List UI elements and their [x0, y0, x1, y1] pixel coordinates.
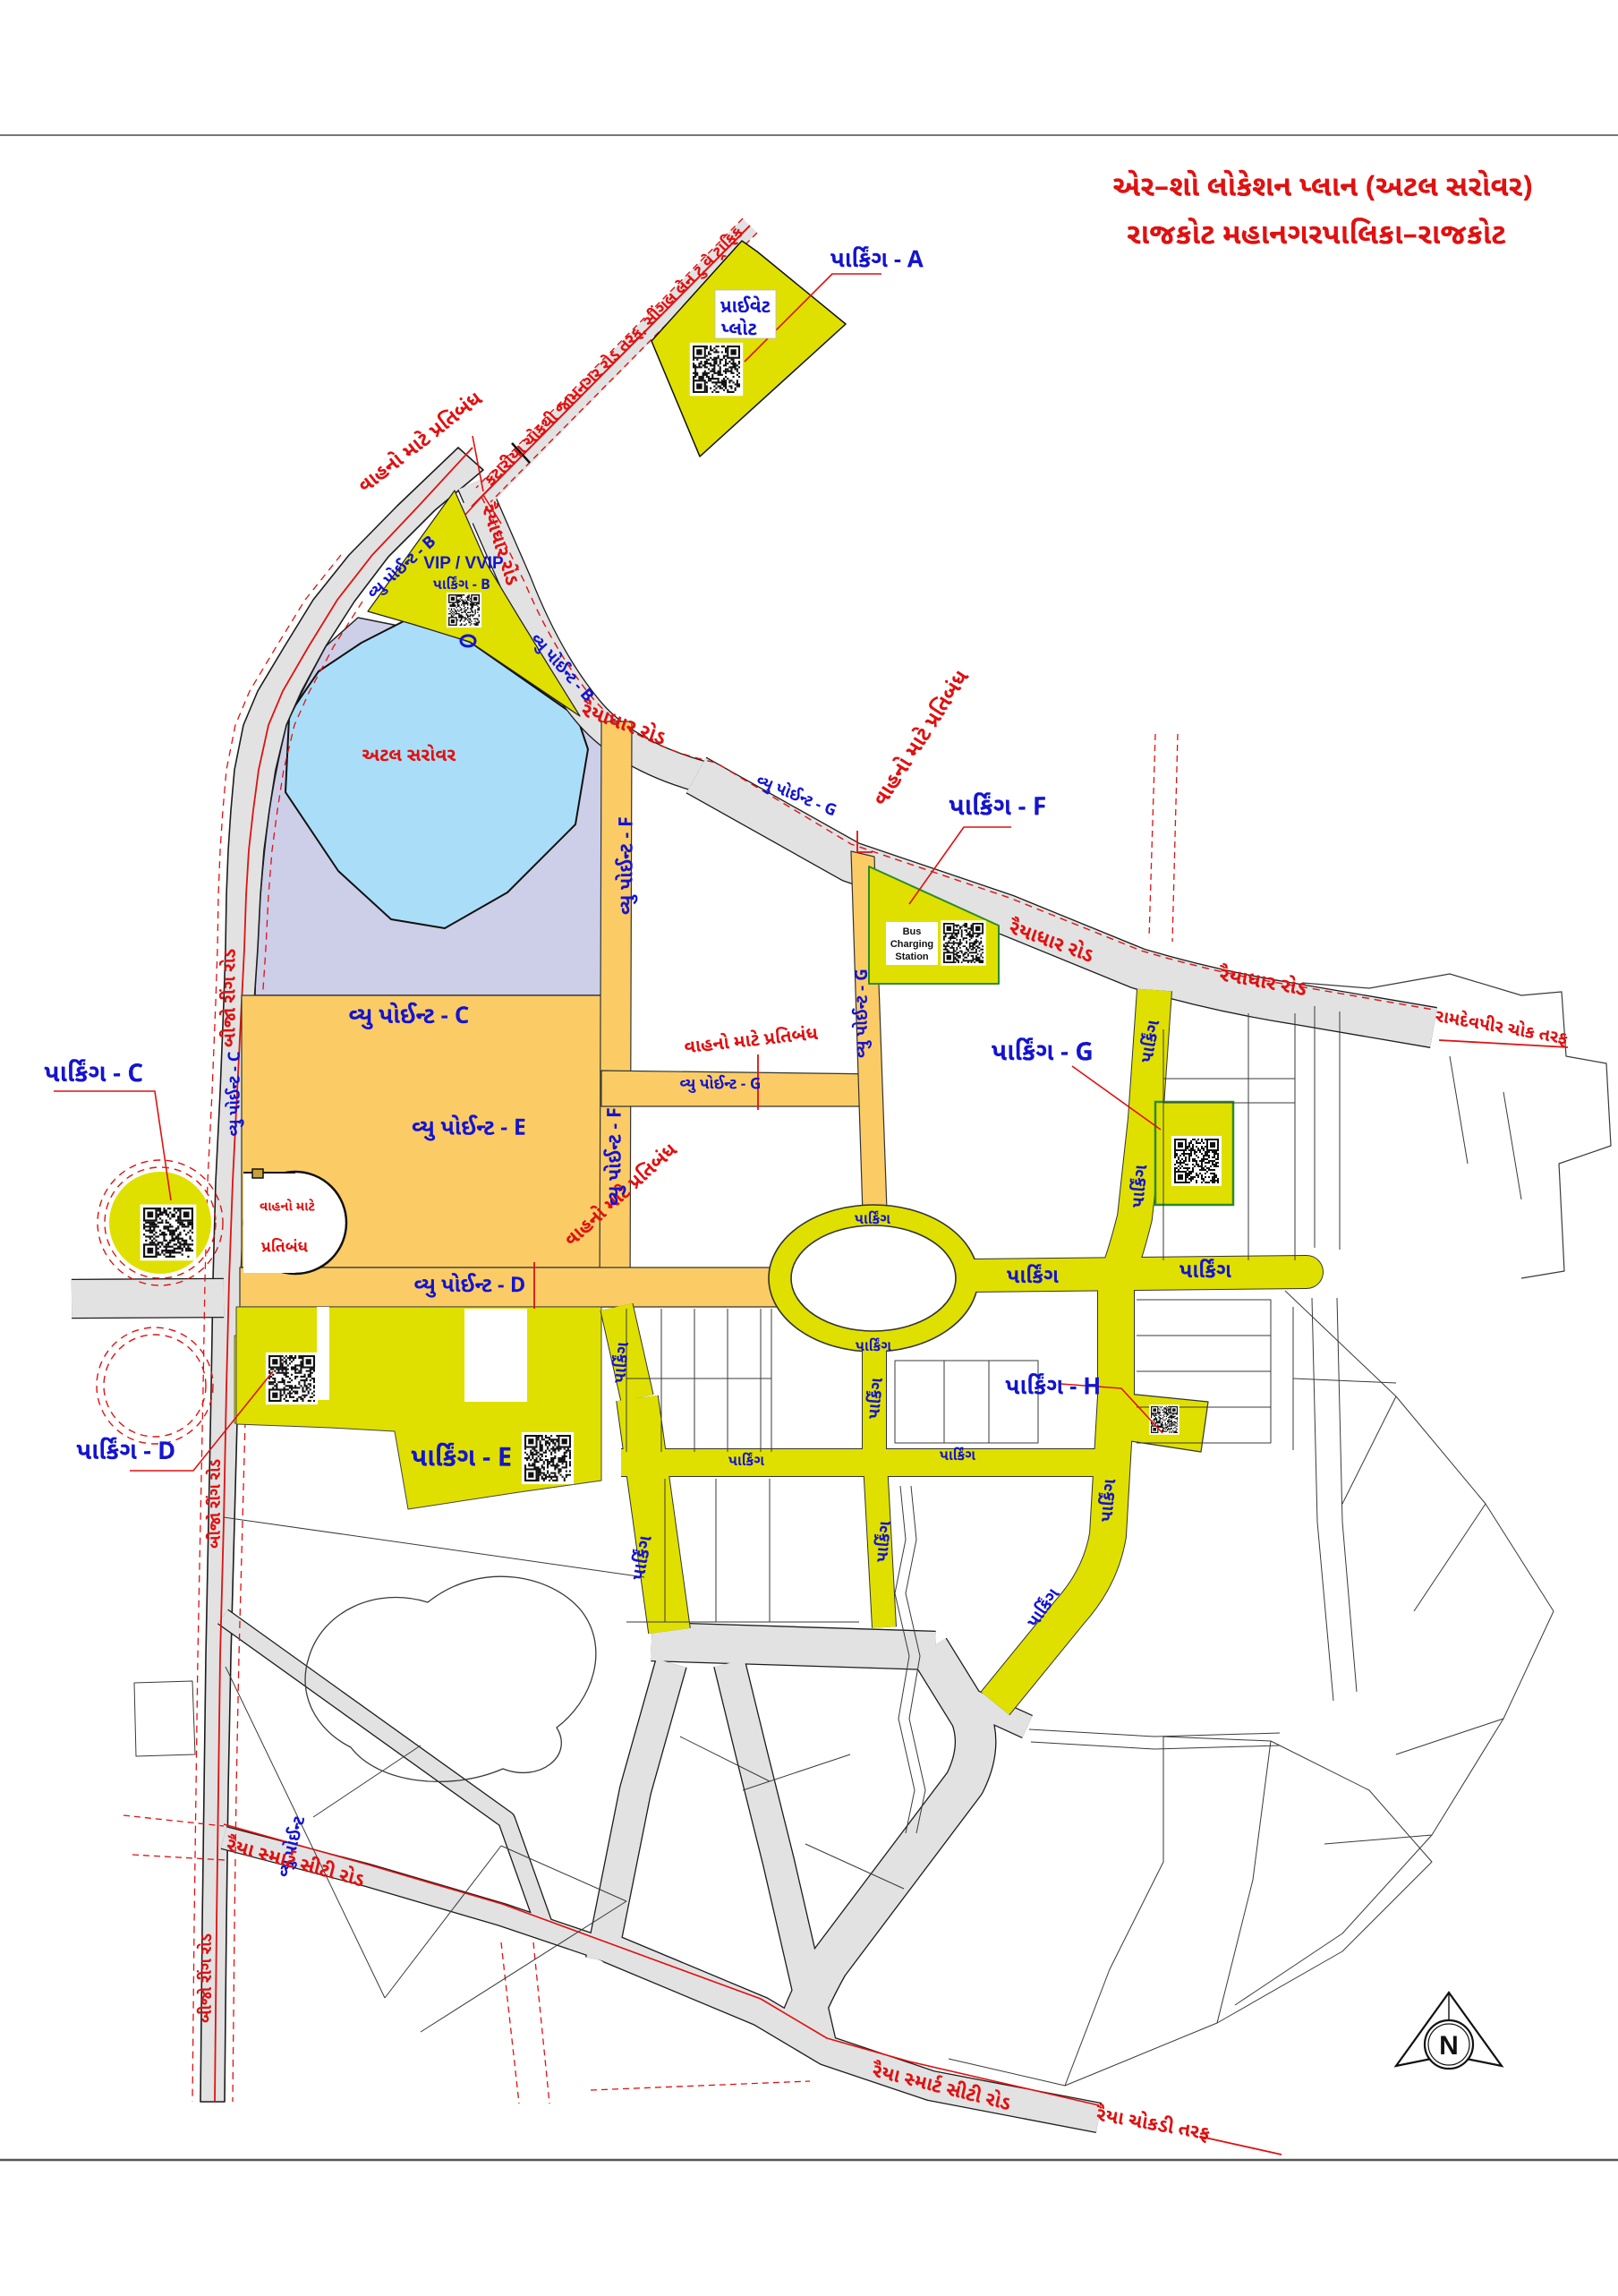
- svg-text:Charging: Charging: [890, 939, 933, 950]
- svg-text:N: N: [1439, 2031, 1459, 2061]
- svg-text:Bus: Bus: [903, 926, 922, 937]
- svg-text:VIP / VVIP: VIP / VVIP: [423, 554, 504, 573]
- svg-text:Station: Station: [895, 952, 929, 962]
